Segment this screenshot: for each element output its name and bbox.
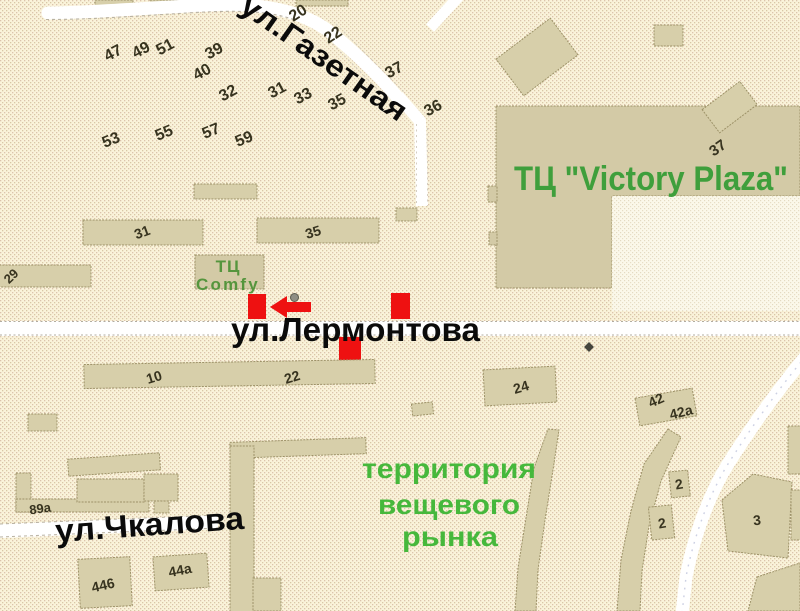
svg-text:вещевого: вещевого bbox=[378, 489, 520, 520]
svg-text:рынка: рынка bbox=[402, 521, 498, 552]
svg-text:89а: 89а bbox=[28, 499, 52, 517]
svg-text:ул.Лермонтова: ул.Лермонтова bbox=[231, 311, 481, 348]
svg-text:Comfy: Comfy bbox=[196, 275, 260, 294]
svg-text:ТЦ: ТЦ bbox=[216, 257, 241, 276]
svg-text:территория: территория bbox=[362, 453, 536, 484]
svg-text:ТЦ "Victory Plaza": ТЦ "Victory Plaza" bbox=[514, 160, 788, 198]
